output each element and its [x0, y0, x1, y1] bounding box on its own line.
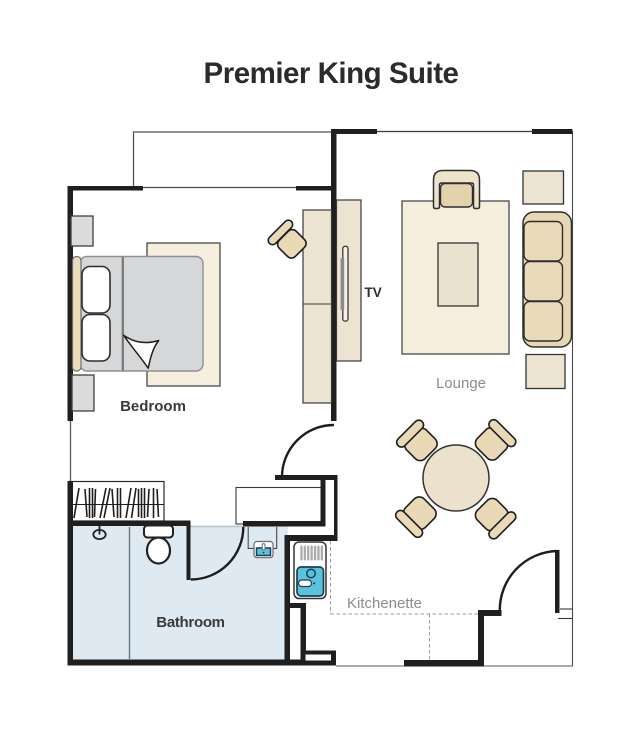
- svg-text:Lounge: Lounge: [436, 375, 486, 392]
- svg-text:Kitchenette: Kitchenette: [347, 595, 422, 612]
- svg-text:Bedroom: Bedroom: [120, 398, 186, 415]
- svg-text:Premier King Suite: Premier King Suite: [204, 57, 459, 90]
- svg-text:TV: TV: [365, 285, 382, 300]
- svg-text:Bathroom: Bathroom: [156, 614, 224, 631]
